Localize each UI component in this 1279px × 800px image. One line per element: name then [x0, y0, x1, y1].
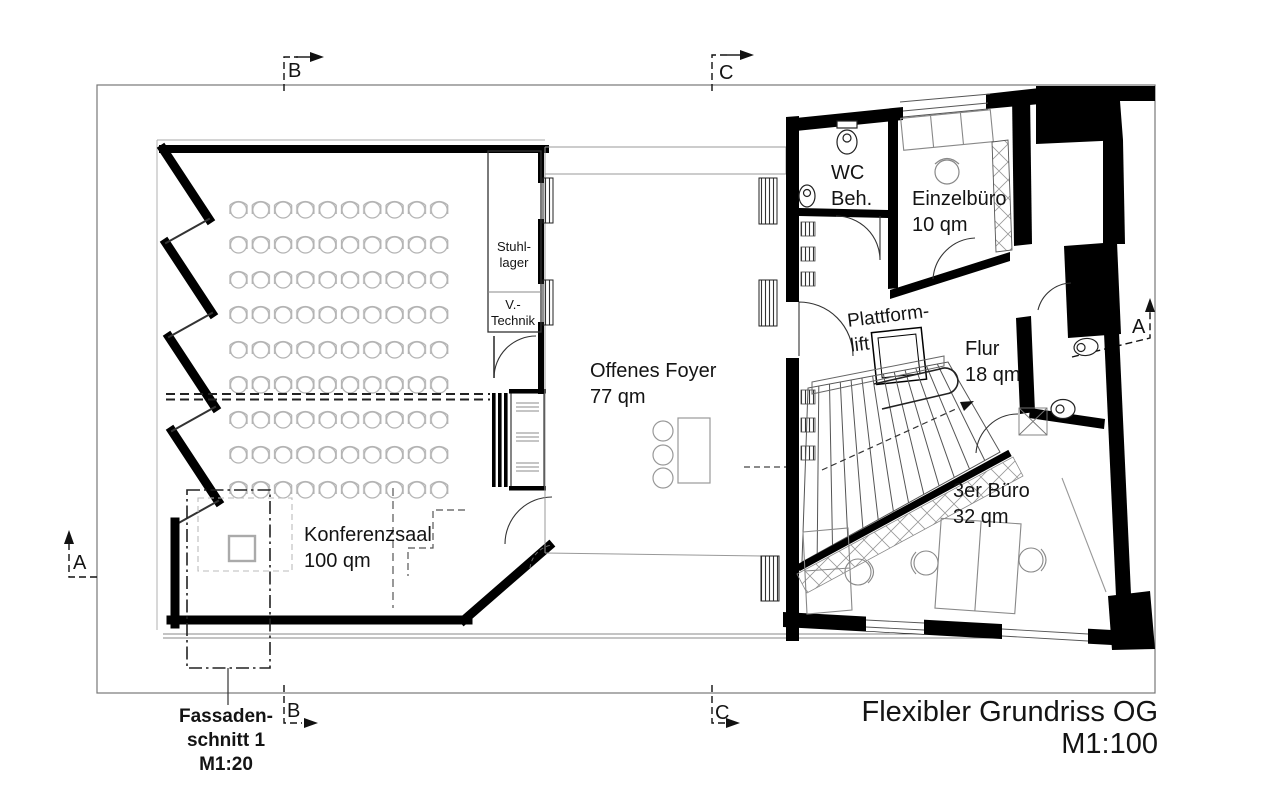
section-letter-c-top: C — [719, 60, 733, 86]
room-label-flur: Flur18 qm — [965, 336, 1021, 388]
office-chair — [911, 551, 938, 575]
section-arrow-b-top — [310, 52, 324, 62]
room-label-einzelbuero: Einzelbüro10 qm — [912, 186, 1007, 238]
facade-section-cut — [187, 488, 465, 705]
corridor-wall-hatches — [801, 222, 815, 460]
drawing-title-block: Flexibler Grundriss OG M1:100 — [861, 696, 1158, 761]
office-chair — [1019, 548, 1046, 572]
floor-plan-sheet: Konferenzsaal100 qm Offenes Foyer77 qm S… — [0, 0, 1279, 800]
foyer-corridor-door-arc — [799, 302, 853, 356]
section-arrow-a-right — [1145, 298, 1155, 312]
facade-section-label: Fassaden- schnitt 1 M1:20 — [156, 705, 296, 776]
conference-chair-rows — [228, 196, 451, 506]
section-letter-a-right: A — [1132, 314, 1145, 340]
section-letter-c-bottom: C — [715, 700, 729, 726]
room-label-stuhllager: Stuhl-lager — [488, 239, 540, 271]
wc-door-arc — [836, 216, 880, 260]
drawing-scale: M1:100 — [861, 728, 1158, 760]
room-label-3er-buero: 3er Büro32 qm — [953, 478, 1030, 530]
foyer-table — [653, 418, 710, 488]
room-label-konferenzsaal: Konferenzsaal100 qm — [304, 522, 432, 574]
section-arrow-c-top — [740, 50, 754, 60]
office-chair — [935, 159, 959, 185]
room-label-plattformlift: Plattform-lift — [846, 300, 934, 359]
partition-stack — [492, 389, 546, 491]
staircase — [797, 356, 1023, 593]
room-label-wc-beh: WCBeh. — [831, 160, 872, 212]
section-arrow-b-bottom — [304, 718, 318, 728]
flur-partition-wall — [890, 252, 1010, 299]
section-letter-a-left: A — [73, 550, 86, 576]
room-label-v-technik: V.-Technik — [483, 297, 543, 329]
section-arrow-a-left — [64, 530, 74, 544]
toilet-icon — [1051, 400, 1075, 419]
room-label-offenes-foyer: Offenes Foyer77 qm — [590, 358, 716, 410]
section-letter-b-top: B — [288, 58, 301, 84]
drawing-title: Flexibler Grundriss OG — [861, 696, 1158, 728]
sink-icon — [1073, 337, 1099, 356]
toilet-icon — [837, 121, 857, 154]
sink-icon — [799, 185, 815, 207]
